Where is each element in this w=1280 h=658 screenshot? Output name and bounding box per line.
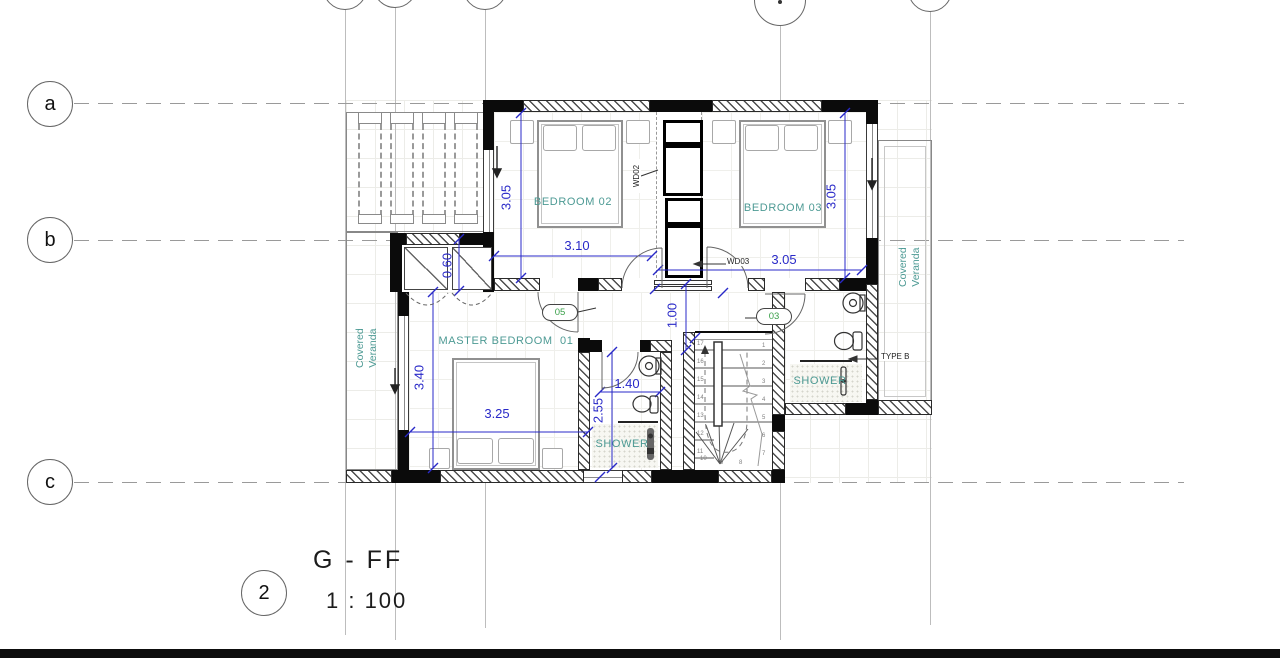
stair-tread-number: 9 <box>720 460 723 466</box>
stair-tread-number: 14 <box>697 395 704 401</box>
wall-segment <box>866 400 878 415</box>
dim-bedroom03-depth: 3.05 <box>824 177 839 217</box>
stair-tread-number: 15 <box>697 377 704 383</box>
grid-bubble-row-c: c <box>27 459 73 505</box>
view-title: G - FF <box>313 546 403 575</box>
dim-ensuite-depth: 2.55 <box>591 391 606 431</box>
room-label-shower-ensuite: SHOWER <box>582 438 662 450</box>
room-label-master-bedroom: MASTER BEDROOM 01 <box>420 335 592 347</box>
stair-tread-number: 11 <box>697 449 703 455</box>
window-wall-segment <box>712 100 822 112</box>
wall-segment <box>650 340 672 352</box>
grid-bubble-center-mark <box>778 0 782 4</box>
view-scale: 1 : 100 <box>326 588 407 614</box>
wall-segment <box>650 100 712 112</box>
wardrobe-shelf <box>665 222 703 228</box>
room-label-bedroom03: BEDROOM 03 <box>733 202 833 214</box>
window-wall-segment <box>866 284 878 400</box>
wall-segment <box>846 403 866 415</box>
pergola-beam-end <box>454 112 478 124</box>
wardrobe-door-track <box>654 286 712 291</box>
dim-master-depth: 3.40 <box>412 358 427 398</box>
window-wall-segment <box>523 100 650 112</box>
stair-tread-number: 6 <box>762 433 765 439</box>
window-segment <box>584 470 622 483</box>
wall-line <box>695 331 772 333</box>
pergola-beam-end <box>422 112 446 124</box>
wall-segment <box>772 415 785 431</box>
pillow <box>498 438 534 464</box>
window-segment <box>483 150 494 232</box>
wall-segment <box>772 470 785 483</box>
grid-bubble-column <box>323 0 367 10</box>
wall-segment <box>840 278 866 291</box>
wall-segment <box>652 470 718 483</box>
wall-segment <box>483 100 494 150</box>
wall-segment <box>494 278 540 291</box>
view-number: 2 <box>258 582 269 605</box>
pergola-beam-end <box>422 214 446 224</box>
grid-bubble-column <box>463 0 507 10</box>
stair-tread-number: 17 <box>697 341 704 347</box>
grid-bubble-column <box>373 0 417 8</box>
nightstand <box>828 120 852 144</box>
stair-tread-number: 5 <box>762 415 765 421</box>
wall-segment <box>392 470 440 483</box>
veranda-right-label: Covered Veranda <box>897 239 923 295</box>
wall-segment <box>748 278 765 291</box>
stair-tread-number: 3 <box>762 379 765 385</box>
wall-segment <box>718 470 772 483</box>
wall-segment <box>460 233 494 245</box>
wall-segment <box>390 245 402 292</box>
wall-line <box>695 339 773 340</box>
dim-master-width: 3.25 <box>477 406 517 421</box>
wardrobe-label-wd02: WD02 <box>633 159 641 193</box>
wall-segment <box>683 332 695 470</box>
stair-tread-number: 2 <box>762 361 765 367</box>
grid-label-a: a <box>44 93 55 116</box>
nightstand <box>429 448 450 469</box>
door-tag-03: 03 <box>756 308 792 325</box>
type-b-label: TYPE B <box>881 353 909 361</box>
dim-bedroom03-width: 3.05 <box>764 252 804 267</box>
wall-segment <box>440 470 584 483</box>
grid-bubble-column <box>908 0 952 12</box>
dim-bedroom02-depth: 3.05 <box>499 178 514 218</box>
dim-hall-width: 1.00 <box>665 296 680 336</box>
pergola-slat <box>358 124 382 216</box>
grid-bubble-row-b: b <box>27 217 73 263</box>
stair-tread-number: 13 <box>697 413 704 419</box>
wall-segment <box>622 470 652 483</box>
wardrobe-wd02 <box>663 120 703 196</box>
view-number-bubble: 2 <box>241 570 287 616</box>
window-segment <box>866 124 878 238</box>
wall-segment <box>578 278 598 291</box>
floor-plan-sheet: a b c <box>0 0 1280 658</box>
wall-segment <box>878 400 932 415</box>
sheet-bottom-border <box>0 649 1280 658</box>
wardrobe-door-track <box>654 280 712 285</box>
pergola-beam-end <box>454 214 478 224</box>
wall-segment <box>398 430 409 470</box>
pergola-slat <box>454 124 478 216</box>
pillow <box>457 438 493 464</box>
dim-bedroom02-width: 3.10 <box>557 238 597 253</box>
nightstand <box>712 120 736 144</box>
wall-segment <box>866 238 878 284</box>
stair-tread-number: 1 <box>762 343 765 349</box>
wardrobe-shelf <box>663 142 703 148</box>
grid-label-c: c <box>45 471 55 494</box>
pillow <box>543 125 577 151</box>
pergola-beam-end <box>390 214 414 224</box>
wall-segment <box>866 100 878 124</box>
wall-segment <box>805 278 840 291</box>
stair-tread-number: 4 <box>762 397 765 403</box>
pillow <box>745 125 779 151</box>
wall-segment <box>398 292 409 316</box>
wall-segment <box>785 403 846 415</box>
stair-tread-number: 16 <box>697 359 704 365</box>
window-segment <box>398 316 409 430</box>
wall-segment <box>390 233 406 245</box>
wall-segment <box>660 352 672 470</box>
pergola-beam-end <box>390 112 414 124</box>
wall-segment <box>406 233 460 245</box>
dim-ensuite-width: 1.40 <box>607 376 647 391</box>
stair-tread-number: 10 <box>700 456 707 462</box>
wall-segment <box>578 352 590 470</box>
stair-tread-number: 7 <box>762 451 765 457</box>
nightstand <box>626 120 650 144</box>
stair-tread-number: 8 <box>739 460 742 466</box>
room-label-bedroom02: BEDROOM 02 <box>523 196 623 208</box>
pergola-beam-end <box>358 112 382 124</box>
pergola-beam-end <box>358 214 382 224</box>
grid-label-b: b <box>44 229 55 252</box>
nightstand <box>510 120 534 144</box>
shower-screen-line <box>800 360 852 362</box>
door-tag-05: 05 <box>542 304 578 321</box>
wall-segment <box>346 470 392 483</box>
wall-segment <box>772 431 785 470</box>
veranda-left-label: Covered Veranda <box>354 320 380 376</box>
pillow <box>582 125 616 151</box>
pillow <box>784 125 818 151</box>
dim-closet-depth: 0.60 <box>440 246 455 286</box>
wardrobe-label-wd03: WD03 <box>727 258 749 266</box>
pergola-slat <box>390 124 414 216</box>
room-label-shower-bath: SHOWER <box>780 375 860 387</box>
wall-segment <box>598 278 622 291</box>
pergola-slat <box>422 124 446 216</box>
nightstand <box>542 448 563 469</box>
wall-segment <box>640 340 650 352</box>
shower-screen-line <box>618 421 658 423</box>
grid-bubble-row-a: a <box>27 81 73 127</box>
stair-tread-number: 12 <box>697 431 704 437</box>
closet-compartment <box>452 247 492 290</box>
wardrobe-wd03 <box>665 198 703 278</box>
